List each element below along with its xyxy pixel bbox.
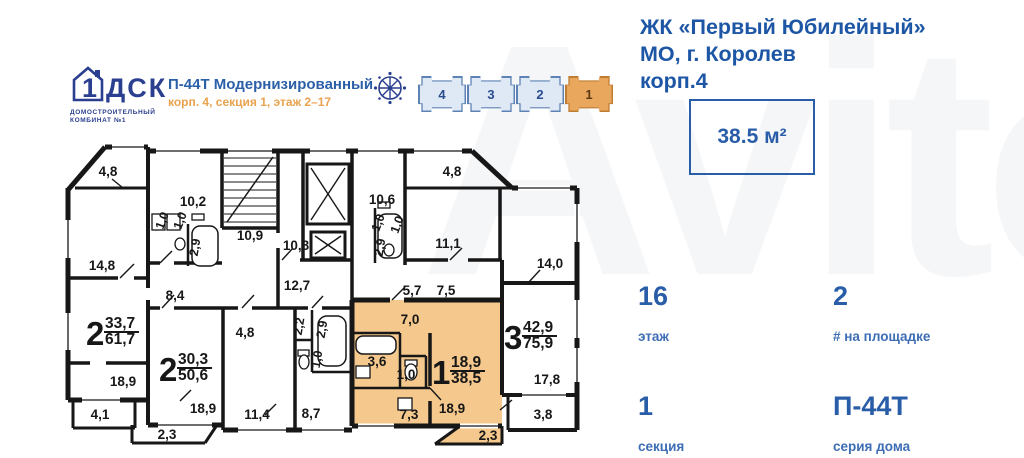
room-area-label: 3,6 [368, 354, 387, 369]
stat-value: 1 [638, 391, 684, 422]
svg-text:75,9: 75,9 [523, 335, 554, 352]
svg-text:1: 1 [432, 354, 450, 391]
section-label: 3 [487, 87, 494, 102]
room-area-label: 1,0 [309, 349, 326, 369]
room-area-label: 11,1 [435, 236, 461, 251]
stat--на-площадке: 2# на площадке [833, 281, 930, 344]
room-area-label: 4,8 [99, 164, 118, 179]
stat-серия-дома: П-44Тсерия дома [833, 391, 910, 454]
room-area-label: 2,9 [187, 237, 204, 257]
room-area-label: 10,9 [237, 228, 263, 243]
complex-title-line: МО, г. Королев [640, 41, 926, 68]
room-area-label: 4,1 [91, 407, 110, 422]
complex-title-line: ЖК «Первый Юбилейный» [640, 14, 926, 41]
room-area-label: 17,8 [534, 372, 561, 387]
room-area-label: 7,3 [400, 407, 419, 422]
svg-text:3: 3 [504, 319, 522, 356]
elevator-shafts [307, 164, 349, 258]
complex-title: ЖК «Первый Юбилейный»МО, г. Королевкорп.… [640, 14, 926, 95]
room-area-label: 18,9 [110, 374, 136, 389]
section-button-2[interactable]: 2 [516, 76, 564, 112]
series-subtitle: корп. 4, секция 1, этаж 2–17 [168, 95, 331, 109]
area-value: 38.5 м² [717, 125, 786, 149]
svg-text:38,5: 38,5 [451, 370, 482, 387]
section-label: 2 [536, 87, 543, 102]
svg-text:42,9: 42,9 [523, 319, 554, 336]
apartment-label-2: 230,350,6 [159, 351, 212, 388]
logo-caption-2: КОМБИНАТ №1 [70, 117, 220, 125]
room-area-label: 1,0 [397, 367, 416, 382]
svg-text:30,3: 30,3 [178, 351, 209, 368]
compass-icon [372, 70, 408, 106]
area-box: 38.5 м² [689, 99, 815, 175]
room-area-label: 12,7 [284, 278, 310, 293]
room-area-label: 18,9 [190, 401, 216, 416]
room-area-label: 10,2 [180, 194, 206, 209]
stat-label: этаж [638, 329, 669, 344]
room-area-label: 2,2 [291, 316, 308, 336]
section-button-4[interactable]: 4 [418, 76, 466, 112]
staircase [224, 157, 276, 222]
page: { "header": { "logo": {"house_char": "1"… [0, 0, 1024, 458]
room-area-label: 3,8 [534, 407, 553, 422]
room-area-label: 7,0 [401, 312, 420, 327]
logo-one: 1 [82, 73, 97, 103]
stat-label: серия дома [833, 439, 910, 454]
logo-dsk: ДСК [106, 73, 167, 103]
stat-value: 16 [638, 281, 669, 312]
room-area-label: 10,8 [283, 238, 310, 253]
logo-caption-1: ДОМОСТРОИТЕЛЬНЫЙ [70, 109, 220, 117]
room-area-label: 2,3 [479, 428, 498, 443]
apartment-label-3: 342,975,9 [504, 319, 557, 356]
series-title: П-44Т Модернизированный [168, 76, 373, 93]
apartment-label-2: 233,761,7 [86, 315, 139, 352]
room-area-label: 4,8 [236, 325, 255, 340]
room-area-label: 14,8 [89, 258, 116, 273]
stat-value: П-44Т [833, 391, 910, 422]
stat-этаж: 16этаж [638, 281, 669, 344]
complex-title-line: корп.4 [640, 68, 926, 95]
room-area-label: 8,4 [166, 288, 185, 303]
room-area-label: 4,8 [443, 164, 462, 179]
svg-text:61,7: 61,7 [105, 331, 135, 348]
room-area-label: 18,9 [439, 401, 465, 416]
room-area-label: 5,7 [403, 283, 422, 298]
svg-text:50,6: 50,6 [178, 367, 209, 384]
room-area-label: 2,3 [158, 427, 177, 442]
room-area-label: 10,6 [369, 192, 396, 207]
section-label: 4 [438, 87, 445, 102]
section-button-3[interactable]: 3 [467, 76, 515, 112]
svg-text:33,7: 33,7 [105, 315, 135, 332]
stat-label: # на площадке [833, 329, 930, 344]
room-area-label: 7,5 [437, 283, 456, 298]
building-section-selector: 4321 [418, 76, 614, 112]
stat-секция: 1секция [638, 391, 684, 454]
floorplan-svg: 4,810,21,01,02,910,914,88,410,812,710,61… [60, 138, 585, 453]
room-area-label: 2,9 [314, 319, 331, 339]
room-area-label: 14,0 [537, 256, 563, 271]
apartment-label-1: 118,938,5 [432, 354, 485, 391]
room-area-label: 2,9 [372, 237, 389, 257]
stat-label: секция [638, 439, 684, 454]
svg-text:2: 2 [86, 315, 104, 352]
section-label: 1 [585, 87, 592, 102]
svg-text:2: 2 [159, 351, 177, 388]
section-button-1[interactable]: 1 [565, 76, 613, 112]
room-area-label: 8,7 [302, 406, 321, 421]
room-area-label: 11,4 [244, 407, 270, 422]
svg-text:18,9: 18,9 [451, 354, 482, 371]
stat-value: 2 [833, 281, 930, 312]
